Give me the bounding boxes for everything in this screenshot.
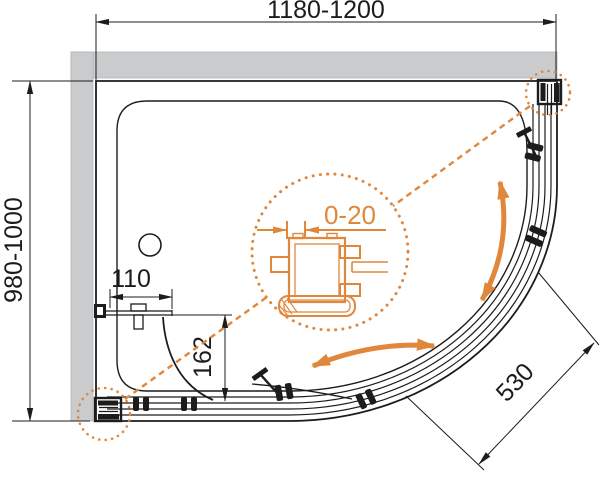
left-wall xyxy=(71,52,93,421)
top-wall xyxy=(71,52,557,78)
dim-label-overall-depth: 980-1000 xyxy=(0,197,28,303)
shower-enclosure-plan: 1180-1200 980-1000 110 162 530 xyxy=(0,0,606,481)
technical-drawing-canvas: 1180-1200 980-1000 110 162 530 xyxy=(0,0,606,481)
detail-circle-magnified xyxy=(252,174,408,330)
dim-label-side-bar: 110 xyxy=(111,265,151,293)
dim-label-overall-width: 1180-1200 xyxy=(267,0,385,24)
dim-label-profile-adjustment: 0-20 xyxy=(324,200,376,230)
dim-label-door-opening: 530 xyxy=(491,358,540,408)
